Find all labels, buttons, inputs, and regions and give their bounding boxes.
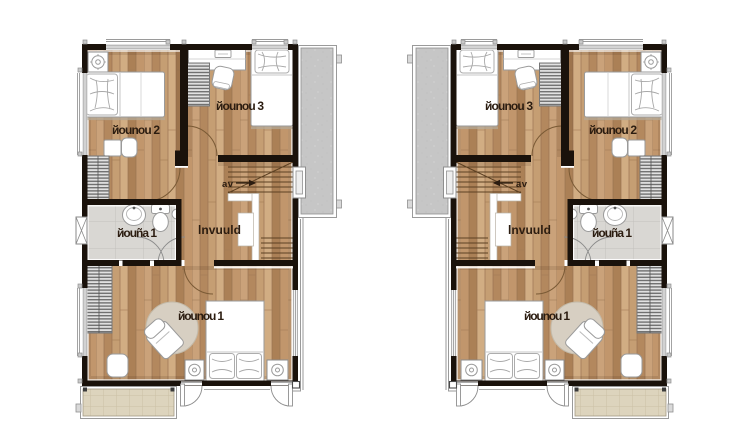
svg-text:йounou 1: йounou 1	[178, 309, 224, 323]
svg-text:йounou 2: йounou 2	[112, 123, 160, 137]
svg-text:йouña 1: йouña 1	[117, 226, 157, 240]
svg-text:йounou 3: йounou 3	[216, 99, 264, 113]
svg-text:av: av	[516, 179, 528, 190]
svg-text:йounou 2: йounou 2	[589, 123, 637, 137]
svg-text:йounou 3: йounou 3	[485, 99, 533, 113]
svg-text:av: av	[222, 179, 234, 190]
svg-text:йounou 1: йounou 1	[524, 309, 570, 323]
svg-text:йouña 1: йouña 1	[592, 226, 632, 240]
svg-text:lnvuuld: lnvuuld	[198, 223, 241, 237]
svg-text:lnvuuld: lnvuuld	[508, 223, 551, 237]
